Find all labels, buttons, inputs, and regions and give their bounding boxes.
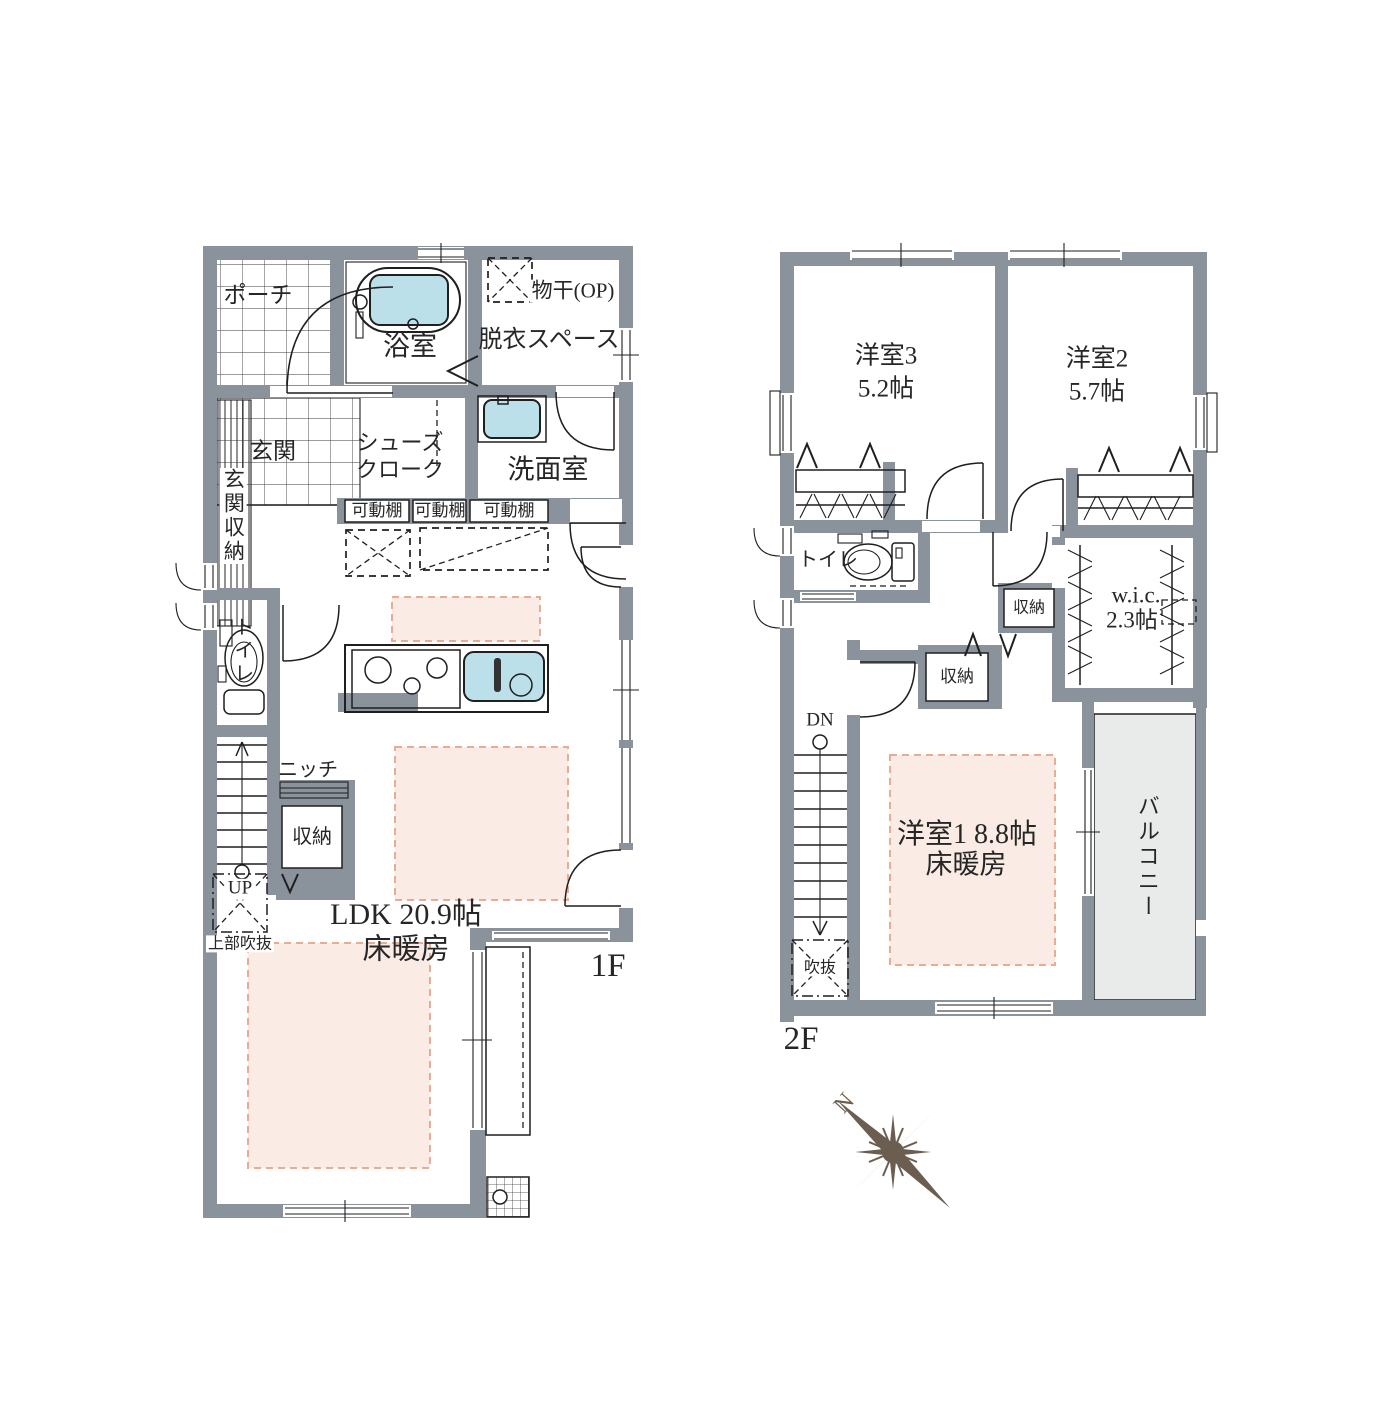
label-void-above: 上部吹抜 (206, 935, 274, 952)
room-label-ldk: LDK 20.9帖 (330, 899, 482, 931)
floor-heating-1 (392, 597, 540, 641)
washbasin-icon (478, 396, 546, 442)
bay-window (486, 947, 530, 1135)
label-movable-shelf-3: 可動棚 (484, 502, 535, 520)
floor-label-2f: 2F (784, 1022, 819, 1058)
room-label-toilet-2f: トイレ (798, 550, 858, 572)
room-label-wic: w.i.c. (1112, 584, 1161, 609)
label-storage-1f: 収納 (292, 827, 332, 849)
room-label-balcony: バルコニー (1135, 795, 1159, 920)
label-niche: ニッチ (278, 760, 338, 782)
label-movable-shelf-2: 可動棚 (415, 502, 466, 520)
room-label-room2-size: 5.7帖 (1069, 379, 1125, 406)
floor1-plan (176, 243, 639, 1222)
room-label-room1: 洋室1 8.8帖 (897, 820, 1037, 850)
room-label-room2: 洋室2 (1066, 346, 1129, 373)
door-swing-mark (1000, 634, 1016, 656)
label-movable-shelf-1: 可動棚 (352, 502, 403, 520)
room-label-bath: 浴室 (383, 332, 437, 361)
kitchen-sink-icon (464, 652, 544, 701)
label-stairs-up: UP (226, 879, 254, 900)
room-label-room3-size: 5.2帖 (858, 376, 914, 403)
room-label-shoe-cloak-1: シューズ (357, 431, 444, 455)
floorplan-page: ポーチ 浴室 物干(OP) 脱衣スペース 玄関 玄関収納 シューズ クローク 洗… (0, 0, 1375, 1416)
label-room1-heating: 床暖房 (926, 850, 1007, 879)
label-storage-2f-top: 収納 (1013, 599, 1045, 616)
compass-icon (837, 1100, 950, 1208)
floor-heating-3 (248, 943, 430, 1168)
room-label-room3: 洋室3 (855, 343, 918, 370)
porch-tiles (217, 260, 330, 385)
exterior-pad (487, 1177, 529, 1217)
room-label-shoe-cloak-2: クローク (356, 458, 444, 482)
closet-room2 (1078, 448, 1193, 520)
bath-room (346, 262, 478, 386)
room-label-porch: ポーチ (224, 284, 293, 309)
label-storage-2f-mid: 収納 (940, 668, 974, 686)
floor-label-1f: 1F (591, 949, 626, 985)
room-label-wic-size: 2.3帖 (1106, 609, 1158, 634)
floor-heating-2 (395, 747, 568, 900)
stairs-up-icon (213, 742, 267, 932)
floorplan-canvas (0, 0, 1375, 1416)
room-label-entrance-storage: 玄関収納 (220, 468, 247, 564)
label-void: 吹抜 (802, 959, 838, 976)
room-label-toilet-1f: トイレ (230, 617, 252, 686)
room-label-entrance: 玄関 (250, 440, 296, 465)
room-label-drying: 物干(OP) (530, 280, 617, 303)
room-label-undress: 脱衣スペース (478, 328, 619, 354)
label-ldk-heating: 床暖房 (362, 934, 449, 965)
room-label-washroom: 洗面室 (508, 455, 589, 484)
label-stairs-down: DN (804, 711, 835, 732)
stairs-down-icon (792, 735, 848, 996)
